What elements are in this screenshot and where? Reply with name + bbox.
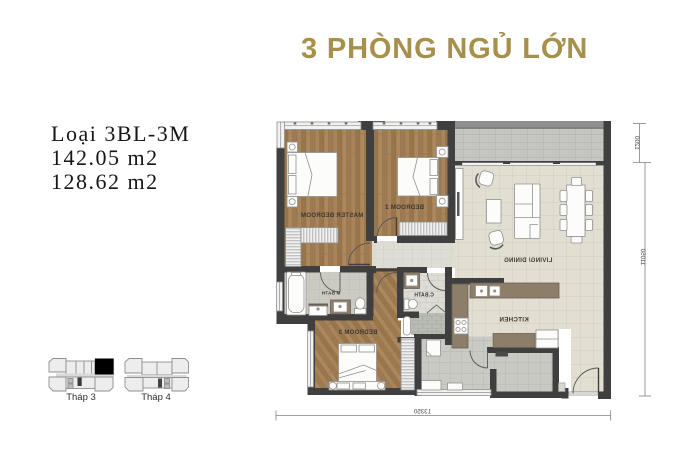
svg-text:MASTER BEDROOM: MASTER BEDROOM [301, 213, 364, 219]
svg-text:1200: 1200 [633, 136, 640, 150]
svg-text:C.BATH: C.BATH [414, 293, 434, 299]
svg-text:13350: 13350 [413, 409, 431, 416]
svg-text:BEDROOM 2: BEDROOM 2 [385, 205, 424, 211]
svg-text:BEDROOM 3: BEDROOM 3 [338, 330, 377, 336]
svg-text:Tháp 3: Tháp 3 [66, 392, 96, 403]
svg-text:11050: 11050 [639, 248, 646, 265]
svg-text:LIVING/ DINING: LIVING/ DINING [504, 258, 553, 264]
svg-text:KITCHEN: KITCHEN [499, 317, 529, 324]
svg-text:M BATH: M BATH [321, 291, 340, 296]
svg-text:Tháp 4: Tháp 4 [141, 392, 171, 403]
